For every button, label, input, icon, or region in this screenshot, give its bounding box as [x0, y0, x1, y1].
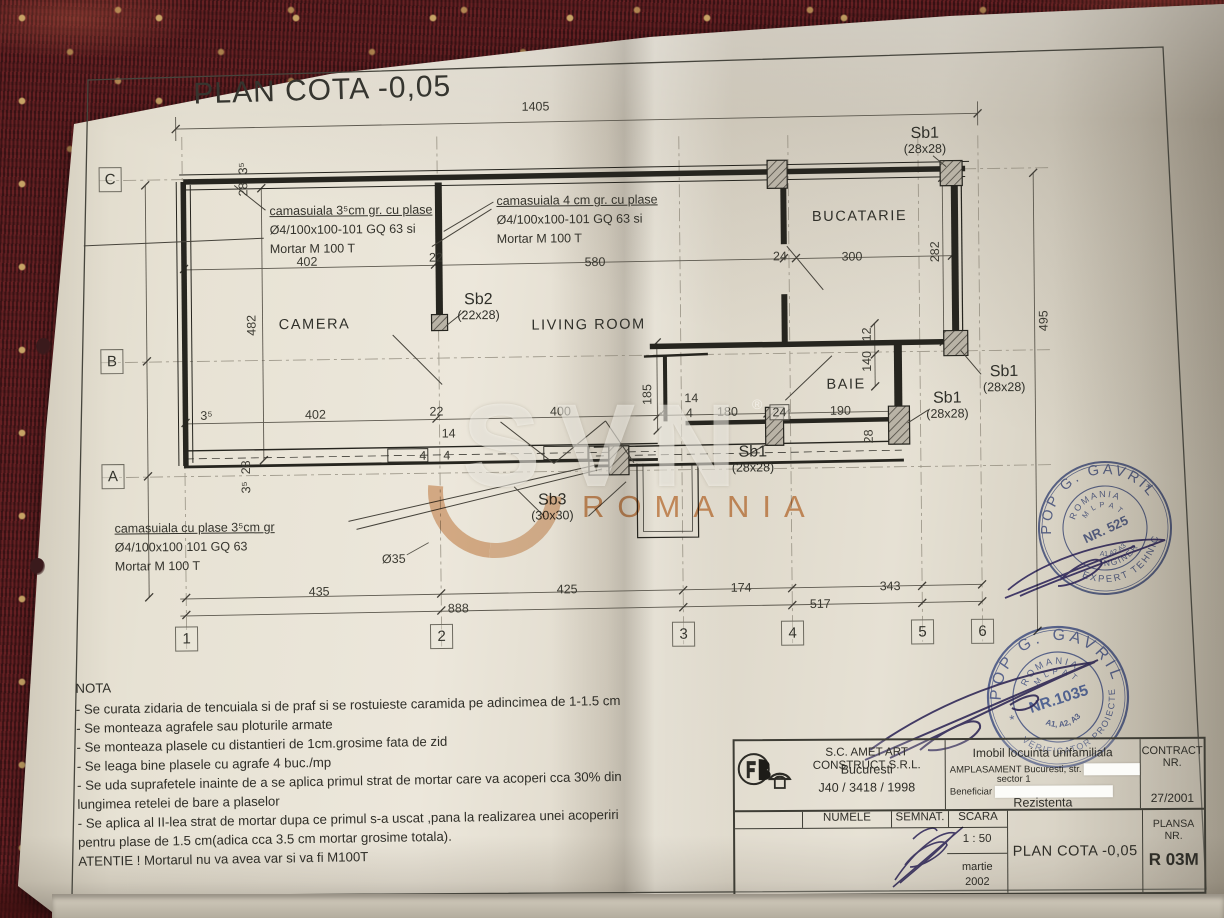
dimension-label: 4 [419, 449, 426, 463]
dimension-label: Ø35 [382, 552, 406, 566]
annotation-line: Mortar M 100 T [115, 556, 275, 576]
dimension-label: 22 [429, 250, 443, 264]
grid-bubble-column: 3 [672, 622, 695, 647]
project-cell: Imobil locuinta unifamiliala AMPLASAMENT… [946, 739, 1141, 809]
column-label: Sb1(28x28) [983, 363, 1026, 395]
column-name: Sb2 [457, 291, 500, 309]
contract-number: 27/2001 [1141, 791, 1204, 805]
dimension-lines [145, 101, 1038, 639]
annotation-line: Ø4/100x100-101 GQ 63 si [270, 219, 433, 239]
project-title: Imobil locuinta unifamiliala [946, 745, 1140, 760]
contract-nr-label: NR. [1141, 757, 1204, 769]
annotation-note: camasuiala 3⁵cm gr. cu plaseØ4/100x100-1… [269, 201, 432, 259]
redaction-box [1084, 763, 1140, 775]
grid-bubble-row: A [101, 464, 124, 489]
dimension-label: 402 [305, 408, 326, 422]
annotation-line: Mortar M 100 T [270, 238, 433, 258]
dimension-label: 3⁵ [236, 162, 250, 174]
grid-bubble-column: 1 [175, 626, 198, 651]
dimension-label: 1405 [522, 99, 550, 113]
dimension-label: 435 [309, 585, 330, 599]
company-cell: S.C. AMET ART CONSTRUCT S.R.L. Bucuresti… [735, 740, 946, 810]
project-sector: sector 1 [946, 773, 1082, 785]
dimension-label: 3⁵ [200, 409, 212, 423]
svg-text:*: * [1002, 713, 1019, 724]
annotation-line: Ø4/100x100 101 GQ 63 [115, 537, 275, 557]
dimension-label: 300 [841, 249, 862, 263]
grid-bubble-column: 2 [430, 624, 453, 649]
room-label: BAIE [826, 376, 866, 392]
column-label: Sb3(30x30) [531, 491, 574, 523]
dimension-label: 14 [684, 391, 698, 405]
column-size: (28x28) [983, 380, 1026, 394]
dimension-label: 580 [584, 255, 605, 269]
punch-hole [36, 338, 51, 355]
column-name: Sb1 [732, 443, 775, 461]
page-title: PLAN COTA -0,05 [193, 70, 452, 112]
dimension-label: 402 [296, 255, 317, 269]
dimension-label: 24 [773, 249, 787, 263]
plansa-cell: PLANSA NR. R 03M [1143, 810, 1204, 892]
room-label: BUCATARIE [812, 208, 907, 225]
dimension-label: 28 [239, 460, 253, 474]
dimension-label: 185 [640, 384, 654, 405]
dimension-label: 888 [448, 601, 469, 615]
room-label: LIVING ROOM [531, 317, 645, 334]
photo-scene: PLAN COTA -0,05 [0, 0, 1224, 918]
nota-lines: - Se curata zidaria de tencuiala si de p… [76, 691, 623, 871]
dimension-label: 4 [686, 406, 693, 420]
dimension-label: 400 [550, 404, 571, 418]
annotation-note: camasuiala cu plase 3⁵cm grØ4/100x100 10… [114, 518, 275, 576]
column-label: Sb1(28x28) [732, 443, 775, 475]
underlying-sheet-edge [52, 894, 1224, 918]
dimension-label: 425 [557, 582, 578, 596]
column-size: (30x30) [531, 509, 574, 523]
dimension-label: 28 [862, 429, 876, 443]
dimension-label: 174 [731, 581, 752, 595]
semnat-signatures [885, 815, 980, 895]
round-stamp-expert: POP G. GAVRIL * ROMANIA M L P A T NR. 52… [1000, 440, 1200, 620]
dimension-label: 190 [830, 404, 851, 418]
column-label: Sb2(22x28) [457, 291, 500, 323]
dimension-label: 12 [860, 327, 874, 341]
plansa-number: R 03M [1143, 850, 1204, 870]
dimension-label: 180 [717, 405, 738, 419]
grid-bubble-row: C [99, 167, 122, 192]
dimension-label: 22 [429, 404, 443, 418]
dimension-label: 282 [928, 241, 942, 262]
header-numele: NUMELE [803, 811, 892, 827]
column-size: (28x28) [926, 407, 969, 421]
dimension-label: 495 [1036, 310, 1050, 331]
contract-label: CONTRACT [1141, 745, 1204, 757]
column-size: (28x28) [732, 461, 775, 475]
annotation-line: camasuiala cu plase 3⁵cm gr [114, 518, 274, 538]
drawing-title-cell: PLAN COTA -0,05 [1008, 810, 1143, 893]
plan-labels: CAMERALIVING ROOMBUCATARIEBAIESb1(28x28)… [0, 0, 1215, 1]
dimension-label: 3⁵ [239, 481, 253, 493]
dimension-label: 24 [769, 404, 789, 420]
dimension-label: 14 [442, 426, 456, 440]
column-name: Sb3 [531, 491, 574, 509]
grid-bubble-column: 4 [781, 621, 804, 646]
dimension-label: 28 [236, 182, 250, 196]
dimension-ticks [141, 109, 1042, 644]
company-logo-icon [737, 749, 793, 799]
room-label: CAMERA [279, 316, 351, 333]
column-size: (28x28) [904, 142, 947, 156]
company-city: Bucuresti [793, 762, 941, 777]
annotation-line: Ø4/100x100-101 GQ 63 si [496, 209, 657, 229]
column-name: Sb1 [983, 363, 1026, 381]
dimension-label: 343 [880, 579, 901, 593]
column-name: Sb1 [903, 125, 946, 143]
column-name: Sb1 [926, 389, 969, 407]
project-discipline: Rezistenta [946, 795, 1140, 810]
annotation-line: camasuiala 3⁵cm gr. cu plase [269, 201, 432, 221]
dimension-label: 4 [443, 448, 450, 462]
company-reg: J40 / 3418 / 1998 [793, 780, 941, 795]
nota-block: NOTA - Se curata zidaria de tencuiala si… [75, 670, 623, 871]
dimension-label: 4 [660, 406, 667, 420]
column-label: Sb1(28x28) [926, 389, 969, 421]
dimension-label: 140 [860, 351, 874, 372]
plansa-label: PLANSA NR. [1143, 818, 1204, 842]
annotation-line: camasuiala 4 cm gr. cu plase [496, 190, 657, 210]
annotation-line: Mortar M 100 T [497, 228, 658, 248]
annotation-note: camasuiala 4 cm gr. cu plaseØ4/100x100-1… [496, 190, 658, 248]
grid-bubble-row: B [100, 349, 123, 374]
column-size: (22x28) [457, 309, 500, 323]
column-label: Sb1(28x28) [903, 125, 946, 157]
dimension-label: 517 [810, 597, 831, 611]
punch-hole [30, 558, 45, 575]
dimension-label: 482 [244, 315, 258, 336]
contract-cell: CONTRACT NR. 27/2001 [1141, 739, 1204, 808]
